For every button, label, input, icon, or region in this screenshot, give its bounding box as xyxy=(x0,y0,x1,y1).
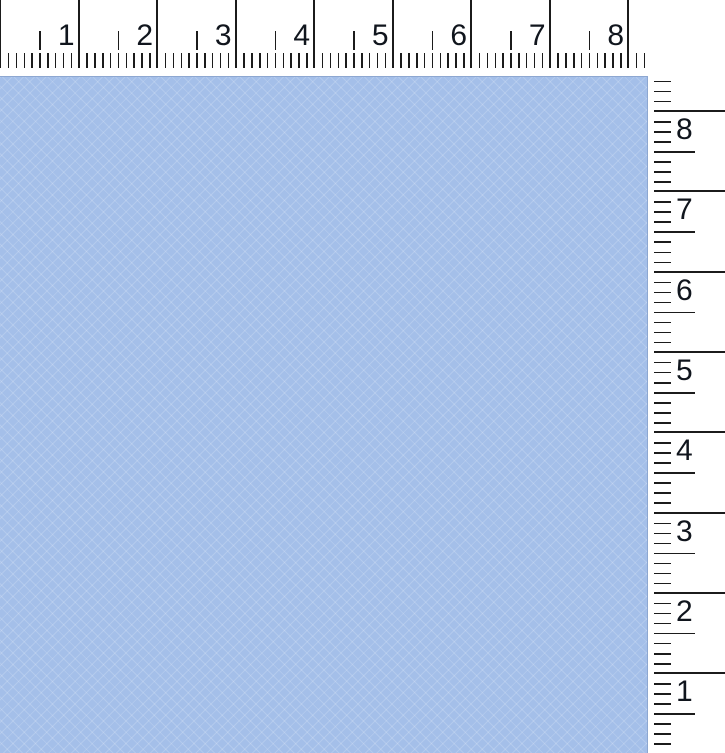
tick-half xyxy=(654,713,695,715)
tick-minor xyxy=(487,53,489,68)
tick-minor xyxy=(654,482,671,484)
tick-minor xyxy=(510,53,512,68)
tick-minor xyxy=(654,342,671,344)
tick-major xyxy=(0,0,1,68)
tick-major xyxy=(470,0,472,68)
tick-minor xyxy=(654,422,671,424)
tick-minor xyxy=(654,543,671,545)
tick-minor xyxy=(604,53,606,68)
tick-minor xyxy=(654,653,671,655)
tick-minor xyxy=(463,53,465,68)
tick-minor xyxy=(290,53,292,68)
ruler-number: 1 xyxy=(35,21,75,51)
tick-minor xyxy=(636,53,638,68)
tick-minor xyxy=(654,221,671,223)
tick-minor xyxy=(322,53,324,68)
ruler-number: 6 xyxy=(676,276,693,306)
desktop: 12345678 87654321 xyxy=(0,0,725,753)
ruler-number: 7 xyxy=(506,21,546,51)
tick-major xyxy=(654,110,725,112)
tick-minor xyxy=(447,53,449,68)
tick-minor xyxy=(565,53,567,68)
tick-minor xyxy=(654,523,671,525)
tick-minor xyxy=(654,101,671,103)
tick-minor xyxy=(455,53,457,68)
tick-minor xyxy=(534,53,536,68)
tick-minor xyxy=(654,693,671,695)
tick-minor xyxy=(71,53,73,68)
tick-minor xyxy=(188,53,190,68)
tick-minor xyxy=(243,53,245,68)
canvas-area[interactable] xyxy=(0,76,648,753)
tick-minor xyxy=(654,292,671,294)
tick-minor xyxy=(86,53,88,68)
vertical-ruler[interactable]: 87654321 xyxy=(651,0,725,753)
tick-minor xyxy=(16,53,18,68)
tick-minor xyxy=(573,53,575,68)
tick-minor xyxy=(39,53,41,68)
tick-minor xyxy=(589,53,591,68)
tick-half xyxy=(654,312,695,314)
horizontal-ruler[interactable]: 12345678 xyxy=(0,0,725,72)
tick-minor xyxy=(330,53,332,68)
ruler-number: 2 xyxy=(113,21,153,51)
tick-minor xyxy=(654,91,671,93)
tick-minor xyxy=(369,53,371,68)
tick-minor xyxy=(212,53,214,68)
tick-minor xyxy=(654,452,671,454)
tick-minor xyxy=(432,53,434,68)
tick-minor xyxy=(24,53,26,68)
tick-minor xyxy=(181,53,183,68)
tick-minor xyxy=(220,53,222,68)
tick-minor xyxy=(654,412,671,414)
tick-minor xyxy=(479,53,481,68)
tick-minor xyxy=(204,53,206,68)
tick-major xyxy=(235,0,237,68)
tick-minor xyxy=(654,382,671,384)
tick-minor xyxy=(251,53,253,68)
tick-half xyxy=(654,151,695,153)
tick-minor xyxy=(196,53,198,68)
ruler-number: 3 xyxy=(676,517,693,547)
tick-minor xyxy=(267,53,269,68)
tick-minor xyxy=(654,362,671,364)
tick-minor xyxy=(654,402,671,404)
tick-minor xyxy=(654,332,671,334)
ruler-number: 2 xyxy=(676,597,693,627)
ruler-number: 8 xyxy=(584,21,624,51)
tick-minor xyxy=(133,53,135,68)
tick-minor xyxy=(361,53,363,68)
tick-minor xyxy=(141,53,143,68)
tick-minor xyxy=(654,533,671,535)
tick-minor xyxy=(47,53,49,68)
tick-major xyxy=(156,0,158,68)
tick-minor xyxy=(654,252,671,254)
tick-minor xyxy=(440,53,442,68)
tick-minor xyxy=(259,53,261,68)
tick-minor xyxy=(377,53,379,68)
tick-half xyxy=(654,392,695,394)
ruler-number: 7 xyxy=(676,195,693,225)
tick-major xyxy=(654,431,725,433)
tick-minor xyxy=(518,53,520,68)
tick-minor xyxy=(654,211,671,213)
tick-minor xyxy=(495,53,497,68)
tick-minor xyxy=(173,53,175,68)
tick-minor xyxy=(654,141,671,143)
ruler-number: 4 xyxy=(270,21,310,51)
tick-minor xyxy=(654,131,671,133)
tick-major xyxy=(549,0,551,68)
tick-minor xyxy=(275,53,277,68)
tick-major xyxy=(627,0,629,68)
tick-minor xyxy=(654,181,671,183)
tick-minor xyxy=(63,53,65,68)
tick-minor xyxy=(126,53,128,68)
tick-minor xyxy=(416,53,418,68)
tick-minor xyxy=(654,171,671,173)
tick-minor xyxy=(400,53,402,68)
tick-major xyxy=(313,0,315,68)
ruler-number: 5 xyxy=(349,21,389,51)
tick-minor xyxy=(110,53,112,68)
tick-minor xyxy=(654,563,671,565)
tick-minor xyxy=(654,603,671,605)
tick-minor xyxy=(654,372,671,374)
tick-minor xyxy=(654,282,671,284)
tick-minor xyxy=(55,53,57,68)
tick-minor xyxy=(654,502,671,504)
tick-minor xyxy=(298,53,300,68)
tick-half xyxy=(654,472,695,474)
tick-minor xyxy=(654,643,671,645)
tick-minor xyxy=(8,53,10,68)
tick-minor xyxy=(654,322,671,324)
tick-minor xyxy=(502,53,504,68)
tick-minor xyxy=(654,683,671,685)
tick-major xyxy=(654,592,725,594)
tick-minor xyxy=(228,53,230,68)
tick-major xyxy=(654,512,725,514)
tick-minor xyxy=(654,492,671,494)
tick-minor xyxy=(338,53,340,68)
tick-minor xyxy=(408,53,410,68)
tick-minor xyxy=(654,583,671,585)
tick-minor xyxy=(654,743,671,745)
tick-minor xyxy=(654,81,671,83)
ruler-number: 3 xyxy=(192,21,232,51)
tick-minor xyxy=(94,53,96,68)
tick-major xyxy=(78,0,80,68)
tick-minor xyxy=(654,302,671,304)
tick-minor xyxy=(165,53,167,68)
tick-minor xyxy=(597,53,599,68)
ruler-number: 5 xyxy=(676,356,693,386)
tick-minor xyxy=(654,703,671,705)
tick-minor xyxy=(149,53,151,68)
tick-minor xyxy=(654,723,671,725)
tick-minor xyxy=(283,53,285,68)
tick-minor xyxy=(612,53,614,68)
tick-major xyxy=(654,351,725,353)
tick-minor xyxy=(654,161,671,163)
tick-major xyxy=(654,190,725,192)
tick-minor xyxy=(385,53,387,68)
ruler-number: 8 xyxy=(676,115,693,145)
tick-minor xyxy=(542,53,544,68)
tick-minor xyxy=(620,53,622,68)
tick-minor xyxy=(654,121,671,123)
tick-minor xyxy=(654,442,671,444)
ruler-number: 6 xyxy=(427,21,467,51)
tick-half xyxy=(654,633,695,635)
tick-minor xyxy=(654,241,671,243)
tick-minor xyxy=(102,53,104,68)
tick-minor xyxy=(557,53,559,68)
tick-major xyxy=(392,0,394,68)
tick-half xyxy=(654,231,695,233)
ruler-number: 1 xyxy=(676,677,693,707)
tick-minor xyxy=(306,53,308,68)
tick-minor xyxy=(581,53,583,68)
tick-minor xyxy=(654,262,671,264)
tick-minor xyxy=(654,623,671,625)
tick-minor xyxy=(654,733,671,735)
tick-major xyxy=(654,271,725,273)
tick-minor xyxy=(654,573,671,575)
tick-minor xyxy=(526,53,528,68)
tick-half xyxy=(654,553,695,555)
tick-major xyxy=(654,672,725,674)
tick-minor xyxy=(353,53,355,68)
tick-minor xyxy=(118,53,120,68)
tick-minor xyxy=(644,53,646,68)
tick-minor xyxy=(424,53,426,68)
tick-minor xyxy=(654,201,671,203)
tick-minor xyxy=(654,462,671,464)
tick-minor xyxy=(31,53,33,68)
tick-minor xyxy=(345,53,347,68)
tick-minor xyxy=(654,613,671,615)
tick-minor xyxy=(654,663,671,665)
ruler-number: 4 xyxy=(676,436,693,466)
